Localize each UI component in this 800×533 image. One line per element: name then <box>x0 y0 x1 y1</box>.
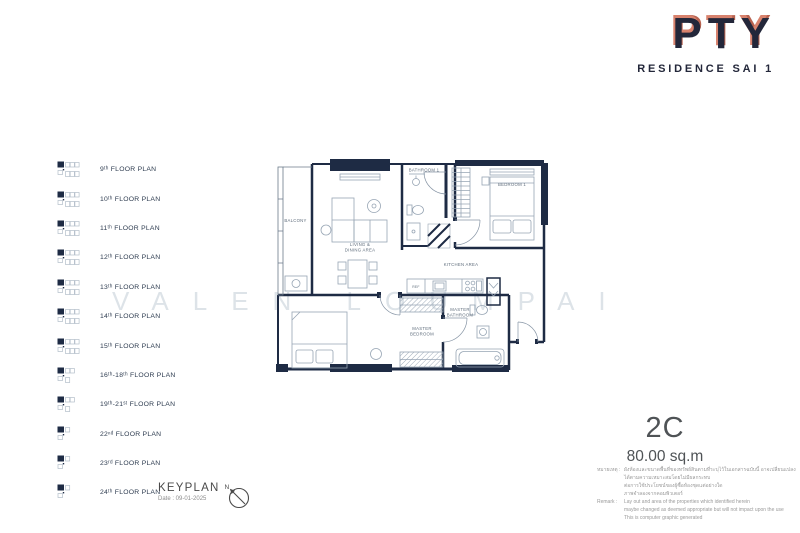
floor-item-23rd[interactable]: 23ʳᵈ FLOOR PLAN <box>57 449 176 478</box>
keyplan-thumb-icon <box>57 367 83 384</box>
floor-item-22nd[interactable]: 22ⁿᵈ FLOOR PLAN <box>57 420 176 449</box>
bathroom1-label: BATHROOM 1 <box>409 168 440 173</box>
remark-en-line: Lay out and area of the properties which… <box>624 498 797 506</box>
remarks-block: หมายเหตุ : ผังห้องและขนาดพื้นที่ของทรัพย… <box>597 466 797 522</box>
floor-plan-drawing: BALCONY BATHROOM 1 BEDROOM 1 LIVING & DI… <box>276 158 562 380</box>
floor-item-label: 24ᵗʰ FLOOR PLAN <box>100 489 160 496</box>
shaft-box <box>487 278 500 305</box>
ref-label: REF <box>412 285 420 289</box>
floor-item-12th[interactable]: 12ᵗʰ FLOOR PLAN <box>57 243 176 272</box>
kitchen-label: KITCHEN AREA <box>444 262 479 267</box>
living-dining-label: DINING AREA <box>345 248 375 253</box>
floor-item-10th[interactable]: 10ᵗʰ FLOOR PLAN <box>57 184 176 213</box>
floor-item-14th[interactable]: 14ᵗʰ FLOOR PLAN <box>57 302 176 331</box>
north-label: N <box>225 484 230 491</box>
master-bedroom-label: MASTER <box>412 326 431 331</box>
floor-item-label: 13ᵗʰ FLOOR PLAN <box>100 284 160 291</box>
remark-en-label: Remark : <box>597 498 624 522</box>
unit-info: 2C 80.00 sq.m <box>598 412 732 466</box>
brand-tagline: RESIDENCE SAI 1 <box>637 63 774 75</box>
keyplan-thumb-icon <box>57 396 83 413</box>
keyplan-title: KEYPLAN <box>158 482 219 494</box>
keyplan-thumb-icon <box>57 426 83 443</box>
keyplan-date: Date : 09-01-2025 <box>158 496 219 502</box>
floor-item-label: 10ᵗʰ FLOOR PLAN <box>100 196 160 203</box>
remark-en-line: maybe changed as deemed appropriate but … <box>624 506 797 514</box>
floor-item-11th[interactable]: 11ᵗʰ FLOOR PLAN <box>57 214 176 243</box>
balcony-label: BALCONY <box>284 218 306 223</box>
plan-walls <box>278 164 544 370</box>
keyplan-thumb-icon <box>57 338 83 355</box>
keyplan-thumb-icon <box>57 308 83 325</box>
keyplan-thumb-icon <box>57 161 83 178</box>
floor-item-13th[interactable]: 13ᵗʰ FLOOR PLAN <box>57 273 176 302</box>
keyplan-thumb-icon <box>57 279 83 296</box>
unit-area: 80.00 sq.m <box>598 448 732 466</box>
remark-thai-label: หมายเหตุ : <box>597 466 624 498</box>
master-bedroom-label: BEDROOM <box>410 332 434 337</box>
floor-item-label: 22ⁿᵈ FLOOR PLAN <box>100 431 161 438</box>
remark-thai-line: ต่อการใช้ประโยชน์ของผู้ซื้อห้องชุดแต่อย่… <box>624 482 797 490</box>
keyplan-thumb-icon <box>57 249 83 266</box>
remark-thai-line: ภาพจำลองจากคอมพิวเตอร์ <box>624 490 797 498</box>
remark-thai-line: ผังห้องและขนาดพื้นที่ของทรัพย์สินตามที่ร… <box>624 466 797 482</box>
master-bathroom-label: MASTER <box>450 307 469 312</box>
floor-plan-index: 9ᵗʰ FLOOR PLAN 10ᵗʰ FLOOR PLAN 11ᵗʰ FLOO… <box>57 155 176 508</box>
floor-item-label: 12ᵗʰ FLOOR PLAN <box>100 254 160 261</box>
bedroom1-label: BEDROOM 1 <box>498 182 526 187</box>
keyplan-thumb-icon <box>57 191 83 208</box>
floor-item-9th[interactable]: 9ᵗʰ FLOOR PLAN <box>57 155 176 184</box>
floor-item-label: 9ᵗʰ FLOOR PLAN <box>100 166 156 173</box>
floor-item-label: 19ᵗʰ-21ˢᵗ FLOOR PLAN <box>100 401 175 408</box>
brand-logo: PTY RESIDENCE SAI 1 <box>637 12 776 75</box>
floor-item-15th[interactable]: 15ᵗʰ FLOOR PLAN <box>57 331 176 360</box>
floor-item-label: 15ᵗʰ FLOOR PLAN <box>100 343 160 350</box>
brand-name: PTY <box>637 12 776 56</box>
living-dining-label: LIVING & <box>350 242 370 247</box>
floor-item-label: 11ᵗʰ FLOOR PLAN <box>100 225 160 232</box>
keyplan-thumb-icon <box>57 220 83 237</box>
floor-item-label: 14ᵗʰ FLOOR PLAN <box>100 313 160 320</box>
master-bathroom-label: BATHROOM <box>447 313 474 318</box>
floor-item-19th-21st[interactable]: 19ᵗʰ-21ˢᵗ FLOOR PLAN <box>57 390 176 419</box>
floor-item-label: 16ᵗʰ-18ᵗʰ FLOOR PLAN <box>100 372 176 379</box>
unit-code: 2C <box>598 412 732 445</box>
floor-plan-page: VALEN LOUMPAI PTY RESIDENCE SAI 1 9ᵗʰ FL… <box>0 0 800 533</box>
remark-en-line: This is computer graphic generated <box>624 514 797 522</box>
entry-diagonal-hatch <box>428 224 450 248</box>
keyplan-legend: KEYPLAN Date : 09-01-2025 N <box>158 482 253 512</box>
keyplan-thumb-icon <box>57 455 83 472</box>
floor-item-16th-18th[interactable]: 16ᵗʰ-18ᵗʰ FLOOR PLAN <box>57 361 176 390</box>
floor-item-label: 23ʳᵈ FLOOR PLAN <box>100 460 160 467</box>
keyplan-thumb-icon <box>57 484 83 501</box>
plan-window-bands <box>276 159 548 372</box>
north-compass-icon: N <box>223 482 253 512</box>
plan-furniture <box>285 168 534 368</box>
